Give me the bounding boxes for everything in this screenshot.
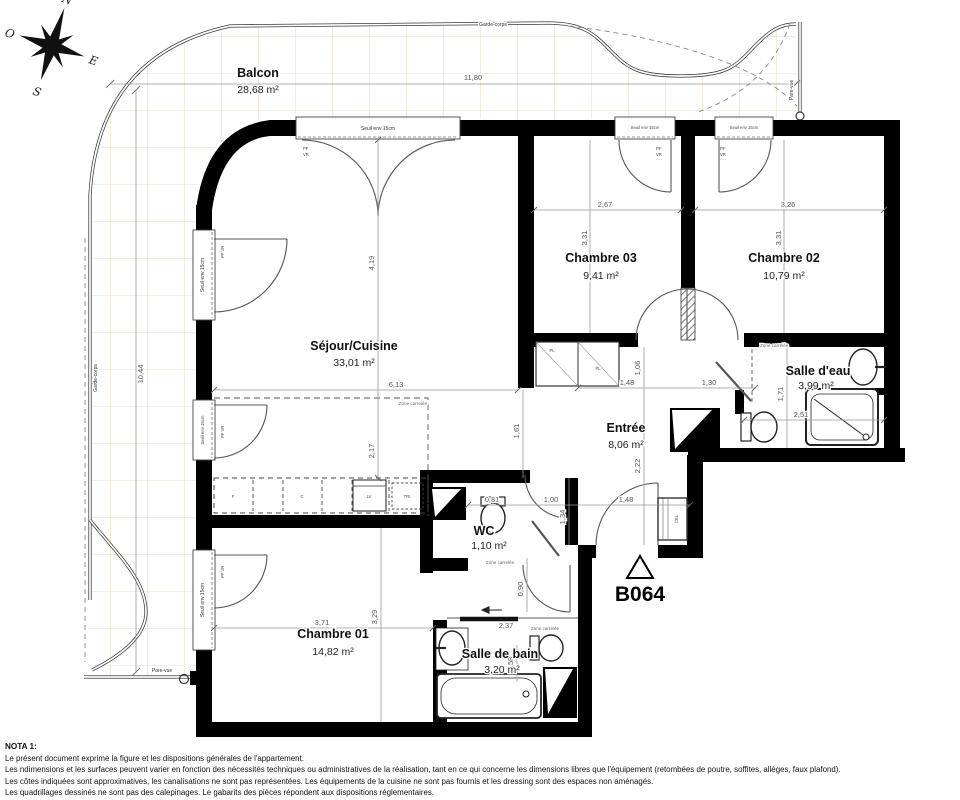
dim: 1,48 [619,495,634,504]
dim: 0,81 [485,495,500,504]
window-sejour-left-upper: Seuil env 15cm [193,230,215,320]
compass-north: N [59,0,75,8]
tiled-zone-label: Zone carrelée [760,343,789,348]
dim: 2,22 [633,459,642,474]
dim: 3,26 [781,200,796,209]
garde-corps-label-top: Garde-corps [479,22,507,28]
nota-line: Les côtes indiquées sont approximatives,… [5,776,955,787]
tiled-zone-label: Zone carrelée [486,560,515,565]
toilet-bowl [751,412,777,442]
compass-south: S [31,84,43,100]
dim: 1,71 [776,387,785,402]
dim-balcony-width: 11,80 [464,73,482,82]
dim: 3,29 [370,610,379,625]
window-sejour-top: Seuil env 15cm [296,117,460,139]
dim: 1,00 [544,495,559,504]
garde-corps-label-left: Garde-corps [93,364,99,392]
fridge-label: F [232,494,235,499]
closet-label: PL [595,366,601,371]
toilet-bowl [539,635,563,661]
kitchen-units: Zone carrelée F C LV TRI [214,398,428,516]
tiled-zone-label: Zone carrelée [399,401,428,406]
window-sill-label: Seuil env 15cm [200,583,206,617]
dim: 4,19 [367,256,376,271]
dim: 2,67 [598,200,613,209]
room-name-chambre03: Chambre 03 [565,251,637,265]
room-name-entree: Entrée [607,421,646,435]
dim: 1,48 [620,378,635,387]
technical-ducts [430,408,720,718]
room-area-chambre01: 14,82 m² [312,646,354,658]
floor-plan-page: 11,80 10,44 Balcon 28,68 m² Garde-corps … [0,0,960,800]
dim: 1,61 [512,424,521,439]
dim: 1,30 [702,378,717,387]
room-area-chambre02: 10,79 m² [763,270,805,282]
apartment-id-marker: B064 [615,556,666,606]
pf-label: PF [720,146,726,151]
dim: 2,17 [367,444,376,459]
room-name-chambre02: Chambre 02 [748,251,820,265]
cooker-label: C [300,494,303,499]
window-sejour-left-lower: Seuil env 15cm [193,400,215,460]
dim: 3,71 [315,618,330,627]
window-sill-label: Seuil env 15cm [631,125,660,130]
room-area-sejour: 33,01 m² [333,357,375,369]
balcony-name: Balcon [237,66,279,80]
closet-label: PL [549,348,555,353]
dimension-values: 4,19 2,17 6,13 1,61 2,67 3,31 3,26 3,31 … [315,200,809,671]
pf-label: PF [303,146,309,151]
pare-vue-label-bottom: Pare-vue [152,668,173,674]
shower-drain [863,434,869,440]
dim: 1,34 [558,510,567,525]
washbasin [849,349,877,385]
bathtub-drain [523,691,529,697]
window-chambre01: Seuil env 15cm [193,550,215,650]
floor-plan-svg: 11,80 10,44 Balcon 28,68 m² Garde-corps … [0,0,960,740]
nota-line: Le présent document exprime la figure et… [5,753,955,764]
sliding-door [447,607,578,619]
room-area-entree: 8,06 m² [608,439,644,451]
vr-label: VR [656,152,662,157]
dim-balcony-height: 10,44 [136,365,145,384]
window-sill-label: Seuil env 15cm [200,258,206,292]
entrance-triangle-icon [627,556,653,578]
dim: 2,37 [499,621,514,630]
room-name-wc: WC [474,524,495,538]
dim: 6,13 [389,380,404,389]
dim: 1,06 [633,361,642,376]
room-area-salle-bain: 3,20 m² [484,664,520,676]
window-sill-label: Seuil env 15cm [730,125,759,130]
compass-west: O [3,25,17,41]
room-name-salle-bain: Salle de bain [462,647,538,661]
pf-vr-label: PF VR [220,426,225,438]
dim: 3,31 [774,231,783,246]
closet-cel-label: CEL [674,514,679,523]
nota-title: NOTA 1: [5,741,955,753]
balcony-area: 28,68 m² [237,84,279,96]
wc-door-leaf [532,521,559,556]
pf-label: PF [656,146,662,151]
room-area-salle-eau: 3,99 m² [798,380,834,392]
shower-room-door-leaf [716,362,751,401]
nota-line: Les ndimensions et les surfaces peuvent … [5,764,955,775]
toilet-tank [741,413,751,441]
window-sill-label: Seuil env 15cm [200,415,205,444]
arrow-left-icon [482,607,502,613]
compass-east: E [86,52,100,68]
room-name-chambre01: Chambre 01 [297,627,369,641]
tiled-zone-label: Zone carrelée [531,626,560,631]
window-sill-label: Seuil env 15cm [361,126,395,132]
dim: 2,51 [794,410,809,419]
pf-vr-label: PF VR [220,246,225,258]
dishwasher-label: LV [367,494,372,499]
nota-block: NOTA 1: Le présent document exprime la f… [5,741,955,799]
compass-rose: N E S O [0,0,116,113]
vr-label: VR [720,152,726,157]
partition-hatched-wall [681,288,695,340]
window-chambre02: Seuil env 15cm [715,117,773,139]
dim: 3,31 [580,231,589,246]
nota-line: Les quadrillages dessinés ne sont pas de… [5,787,955,798]
room-area-chambre03: 9,41 m² [583,270,619,282]
pf-vr-label: PF VR [220,566,225,578]
room-name-sejour: Séjour/Cuisine [310,339,398,353]
room-name-salle-eau: Salle d'eau [786,364,851,378]
tri-label: TRI [404,494,411,499]
apartment-id: B064 [615,583,666,606]
room-area-wc: 1,10 m² [471,540,507,552]
pare-vue-label-top: Pare-vue [789,80,795,101]
window-chambre03: Seuil env 15cm [615,117,675,139]
room-labels: Séjour/Cuisine 33,01 m² Chambre 03 9,41 … [297,251,850,676]
vr-label: VR [303,152,309,157]
dim: 0,90 [516,582,525,597]
rail-post [796,112,804,120]
